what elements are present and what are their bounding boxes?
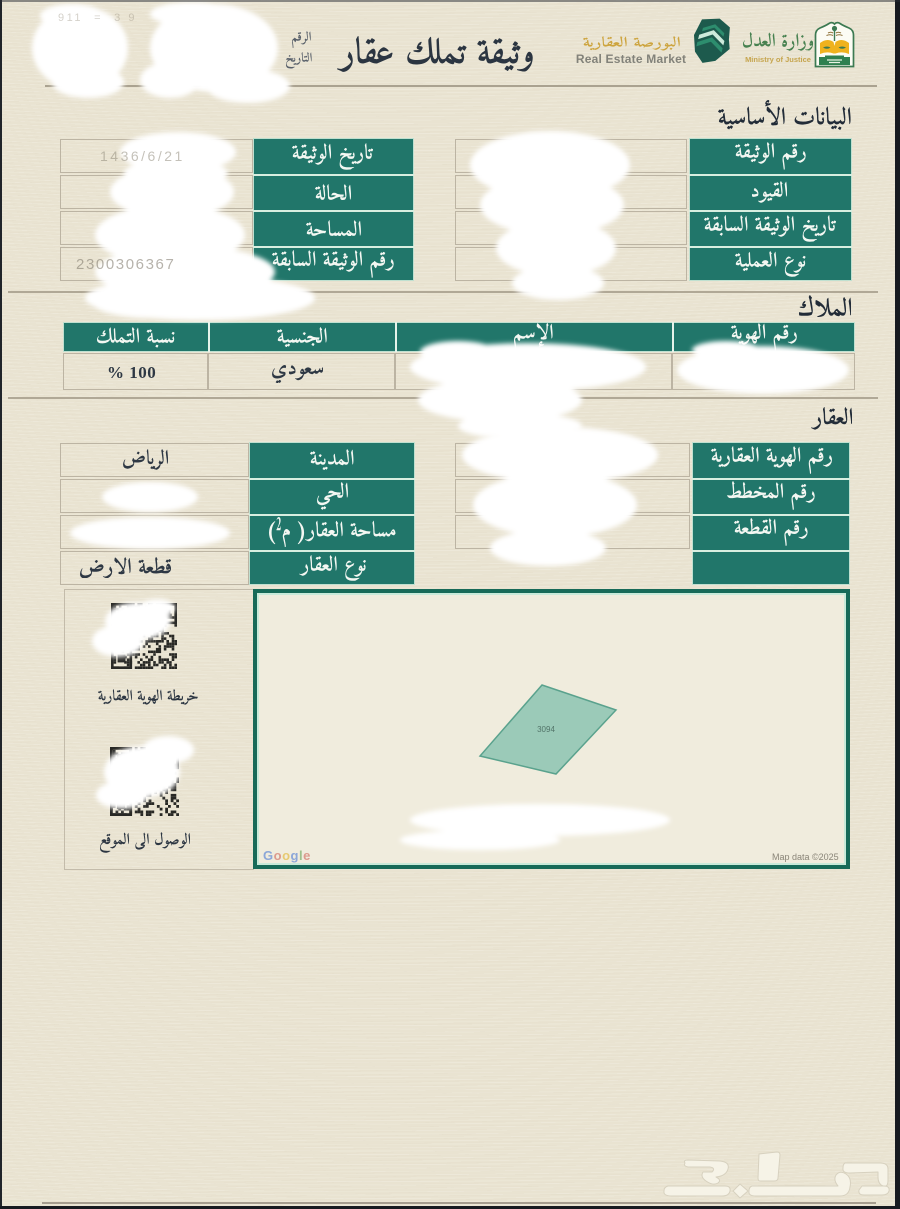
svg-text:3094: 3094 [537,725,555,734]
